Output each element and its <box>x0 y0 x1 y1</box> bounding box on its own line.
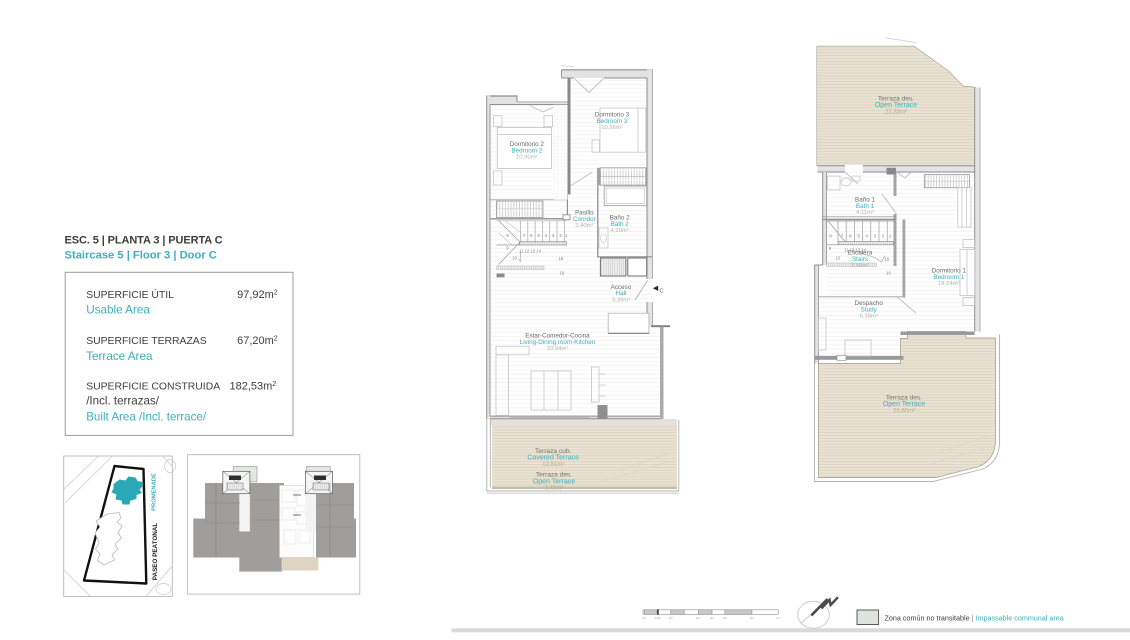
svg-text:Hall: Hall <box>616 290 627 297</box>
svg-text:15: 15 <box>885 257 890 262</box>
svg-text:C: C <box>660 289 664 295</box>
svg-text:Bedroom 1: Bedroom 1 <box>933 274 964 281</box>
svg-text:10,66m²: 10,66m² <box>601 125 623 131</box>
svg-text:Built Area /Incl. terrace/: Built Area /Incl. terrace/ <box>86 411 207 424</box>
svg-text:Staircase 5 | Floor 3 | Door C: Staircase 5 | Floor 3 | Door C <box>65 250 217 262</box>
svg-text:16: 16 <box>560 271 565 276</box>
svg-text:PROMENADE: PROMENADE <box>152 473 158 511</box>
svg-text:0,5m: 0,5m <box>655 616 662 620</box>
svg-text:Bath 1: Bath 1 <box>856 203 875 210</box>
svg-text:1m: 1m <box>669 616 674 620</box>
svg-text:3,46m²: 3,46m² <box>545 485 564 491</box>
svg-text:Open Terrace: Open Terrace <box>533 478 575 485</box>
svg-text:22,33m²: 22,33m² <box>885 109 907 115</box>
svg-text:10,90m²: 10,90m² <box>516 155 538 161</box>
svg-text:182,53m2: 182,53m2 <box>230 381 277 393</box>
svg-text:Zona común no transitable | Im: Zona común no transitable | Impassable c… <box>885 613 1064 622</box>
svg-text:26,60m²: 26,60m² <box>893 409 915 415</box>
svg-text:1m: 1m <box>642 616 647 620</box>
svg-text:5m: 5m <box>750 616 755 620</box>
svg-text:SUPERFICIE ÚTIL: SUPERFICIE ÚTIL <box>86 288 174 301</box>
svg-text:Bedroom 3: Bedroom 3 <box>597 118 628 125</box>
svg-text:ESC. 5 | PLANTA 3 | PUERTA C: ESC. 5 | PLANTA 3 | PUERTA C <box>65 235 223 247</box>
svg-text:11 12 13 14: 11 12 13 14 <box>519 249 541 254</box>
svg-text:Usable Area: Usable Area <box>86 304 150 317</box>
svg-text:Open Terrace: Open Terrace <box>875 102 917 109</box>
svg-text:/Incl. terrazas/: /Incl. terrazas/ <box>86 395 160 408</box>
svg-text:Bath 2: Bath 2 <box>611 221 630 228</box>
svg-text:7m: 7m <box>776 616 781 620</box>
svg-text:16: 16 <box>886 271 891 276</box>
svg-text:3,39m²: 3,39m² <box>612 297 630 303</box>
svg-text:Covered Terrace: Covered Terrace <box>527 455 579 462</box>
svg-text:Bedroom 2: Bedroom 2 <box>511 147 542 154</box>
svg-text:10: 10 <box>512 256 517 261</box>
svg-text:15: 15 <box>559 256 564 261</box>
svg-text:SUPERFICIE CONSTRUIDA: SUPERFICIE CONSTRUIDA <box>86 382 220 393</box>
svg-text:2m: 2m <box>696 616 701 620</box>
svg-text:67,20m2: 67,20m2 <box>237 335 278 347</box>
svg-text:4,11m²: 4,11m² <box>856 210 874 216</box>
svg-text:Open Terrace: Open Terrace <box>883 401 925 408</box>
svg-text:10: 10 <box>836 256 841 261</box>
svg-text:18,54m²: 18,54m² <box>938 281 960 287</box>
svg-text:Stairs: Stairs <box>852 256 868 263</box>
svg-text:Corridor: Corridor <box>573 216 596 223</box>
svg-text:Study: Study <box>861 306 878 313</box>
svg-text:6,38m²: 6,38m² <box>860 314 878 320</box>
svg-text:2,58m²: 2,58m² <box>851 263 869 269</box>
svg-text:33,94m²: 33,94m² <box>547 346 569 352</box>
svg-text:PASEO PEATONAL: PASEO PEATONAL <box>152 523 159 581</box>
svg-text:3m: 3m <box>710 616 715 620</box>
svg-text:12,81m²: 12,81m² <box>542 462 564 468</box>
svg-text:3,40m²: 3,40m² <box>575 223 593 229</box>
svg-text:97,92m2: 97,92m2 <box>237 289 278 301</box>
svg-text:SUPERFICIE TERRAZAS: SUPERFICIE TERRAZAS <box>86 336 207 347</box>
svg-text:Living-Dining room-Kitchen: Living-Dining room-Kitchen <box>520 339 596 346</box>
svg-text:4m: 4m <box>723 616 728 620</box>
svg-text:4,20m²: 4,20m² <box>611 228 629 234</box>
svg-text:Terrace Area: Terrace Area <box>86 350 153 363</box>
